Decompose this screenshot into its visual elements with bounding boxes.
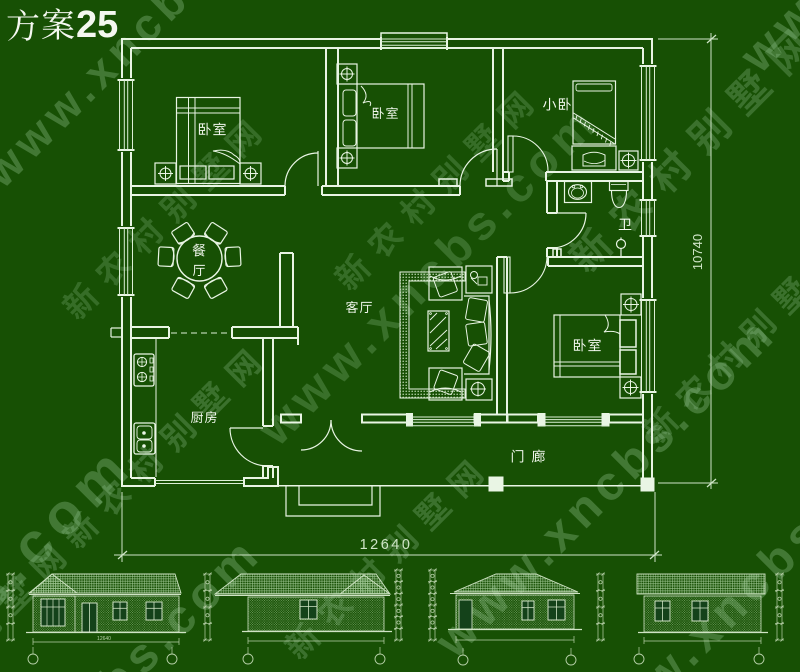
svg-text:12640: 12640 <box>97 636 111 642</box>
svg-text:25: 25 <box>76 4 118 46</box>
svg-text:12640: 12640 <box>360 537 413 553</box>
svg-text:10740: 10740 <box>690 234 705 270</box>
